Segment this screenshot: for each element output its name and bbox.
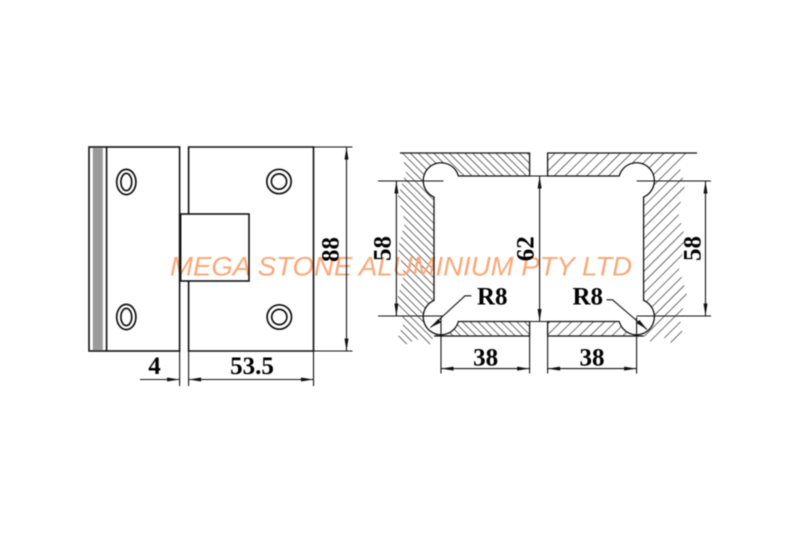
svg-text:58: 58 bbox=[680, 236, 707, 261]
svg-text:38: 38 bbox=[473, 345, 498, 372]
svg-text:58: 58 bbox=[370, 236, 397, 261]
svg-text:4: 4 bbox=[148, 353, 161, 380]
svg-text:R8: R8 bbox=[477, 284, 508, 311]
svg-text:88: 88 bbox=[318, 237, 345, 262]
svg-text:53.5: 53.5 bbox=[230, 353, 274, 380]
svg-text:MEGA STONE ALUMINIUM PTY LTD: MEGA STONE ALUMINIUM PTY LTD bbox=[170, 252, 632, 282]
svg-text:38: 38 bbox=[580, 345, 605, 372]
svg-text:62: 62 bbox=[513, 236, 540, 261]
svg-text:R8: R8 bbox=[573, 284, 604, 311]
